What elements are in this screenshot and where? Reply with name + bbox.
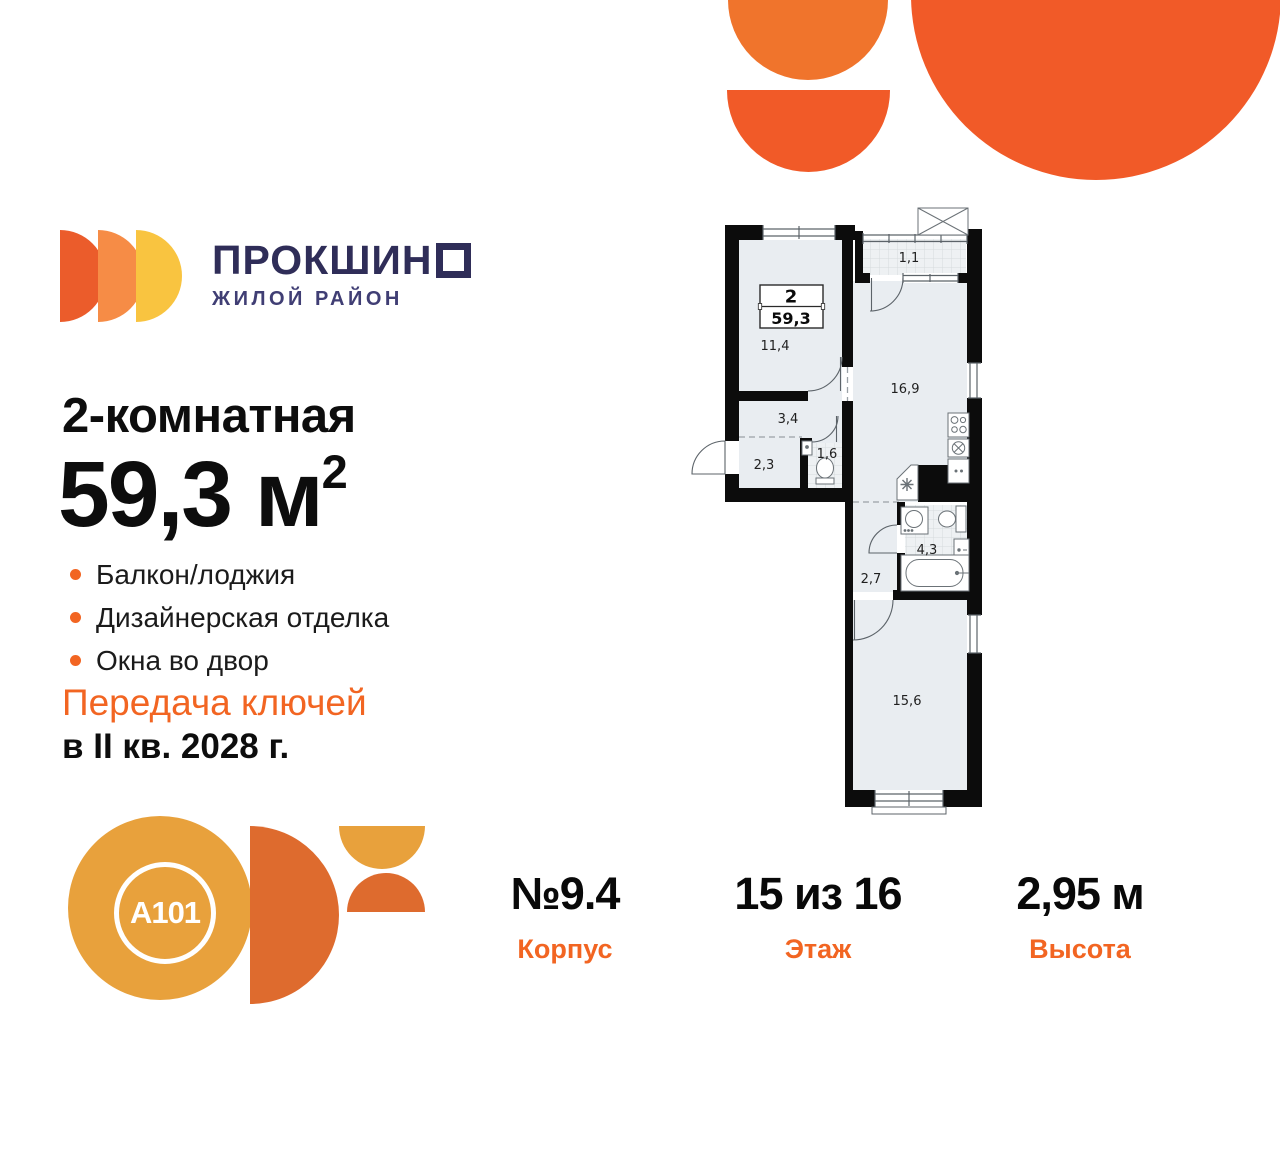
shaft-x-box: [918, 208, 968, 235]
room-label-wc: 1,6: [817, 447, 838, 462]
feature-item-windows: Окна во двор: [70, 639, 389, 682]
brand-name: ПРОКШИН: [212, 240, 471, 281]
stat-height-value: 2,95 м: [970, 868, 1190, 920]
bullet-icon: [70, 569, 81, 580]
developer-logo-ring: A101: [114, 862, 216, 964]
decor-semicircle-bottom: [727, 90, 890, 172]
stat-building: №9.4 Корпус: [455, 868, 675, 965]
badge-rooms: 2: [785, 287, 798, 308]
area-value: 59,3: [58, 442, 231, 546]
feature-item-balcony: Балкон/лоджия: [70, 553, 389, 596]
listing-area: 59,3 м2: [58, 441, 348, 548]
feature-label: Окна во двор: [96, 645, 269, 677]
brand-subtitle: ЖИЛОЙ РАЙОН: [212, 288, 471, 311]
room-label-hall: 3,4: [778, 412, 799, 427]
decor-circle-large: [911, 0, 1280, 180]
feature-label: Дизайнерская отделка: [96, 602, 389, 634]
stat-building-label: Корпус: [455, 934, 675, 965]
room-label-entry: 2,3: [754, 458, 775, 473]
developer-logo-text: A101: [130, 895, 200, 931]
plan-badge: 2 59,3: [758, 285, 824, 328]
brand-logo: ПРОКШИН ЖИЛОЙ РАЙОН: [212, 240, 471, 311]
feature-label: Балкон/лоджия: [96, 559, 295, 591]
brand-square-o-icon: [436, 243, 471, 278]
bullet-icon: [70, 655, 81, 666]
stat-floor-label: Этаж: [708, 934, 928, 965]
area-superscript: 2: [322, 445, 348, 498]
listing-card: { "brand": { "name_prefix": "ПРОКШИН", "…: [0, 0, 1280, 1160]
feature-item-finish: Дизайнерская отделка: [70, 596, 389, 639]
area-unit: м: [255, 442, 322, 546]
brand-logo-petal-3: [136, 230, 182, 322]
brand-name-prefix: ПРОКШИН: [212, 240, 432, 281]
developer-logo-dome-up: [347, 873, 425, 912]
developer-logo-dome-down: [339, 826, 425, 869]
floor-plan: 2 59,3 1,1 11,4 3,4 2,3 1,6 16,9 4,3 2,7…: [690, 195, 1000, 825]
stat-floor-value: 15 из 16: [708, 868, 928, 920]
listing-title: 2-комнатная: [62, 388, 356, 444]
keys-handover-line1: Передача ключей: [62, 682, 367, 724]
feature-list: Балкон/лоджия Дизайнерская отделка Окна …: [70, 553, 389, 682]
badge-area: 59,3: [771, 309, 810, 328]
room-label-corridor: 2,7: [861, 572, 882, 587]
room-label-balcony: 1,1: [899, 251, 920, 266]
decor-semicircle-top: [728, 0, 888, 80]
room-label-kitchen: 16,9: [891, 382, 920, 397]
developer-logo-halfcircle: [250, 826, 339, 1004]
room-label-bathroom: 4,3: [917, 543, 938, 558]
keys-handover-line2: в II кв. 2028 г.: [62, 727, 289, 767]
room-label-bedroom2: 15,6: [893, 694, 922, 709]
stat-floor: 15 из 16 Этаж: [708, 868, 928, 965]
stat-height: 2,95 м Высота: [970, 868, 1190, 965]
stat-height-label: Высота: [970, 934, 1190, 965]
stat-building-value: №9.4: [455, 868, 675, 920]
room-label-bedroom1: 11,4: [761, 339, 790, 354]
bullet-icon: [70, 612, 81, 623]
